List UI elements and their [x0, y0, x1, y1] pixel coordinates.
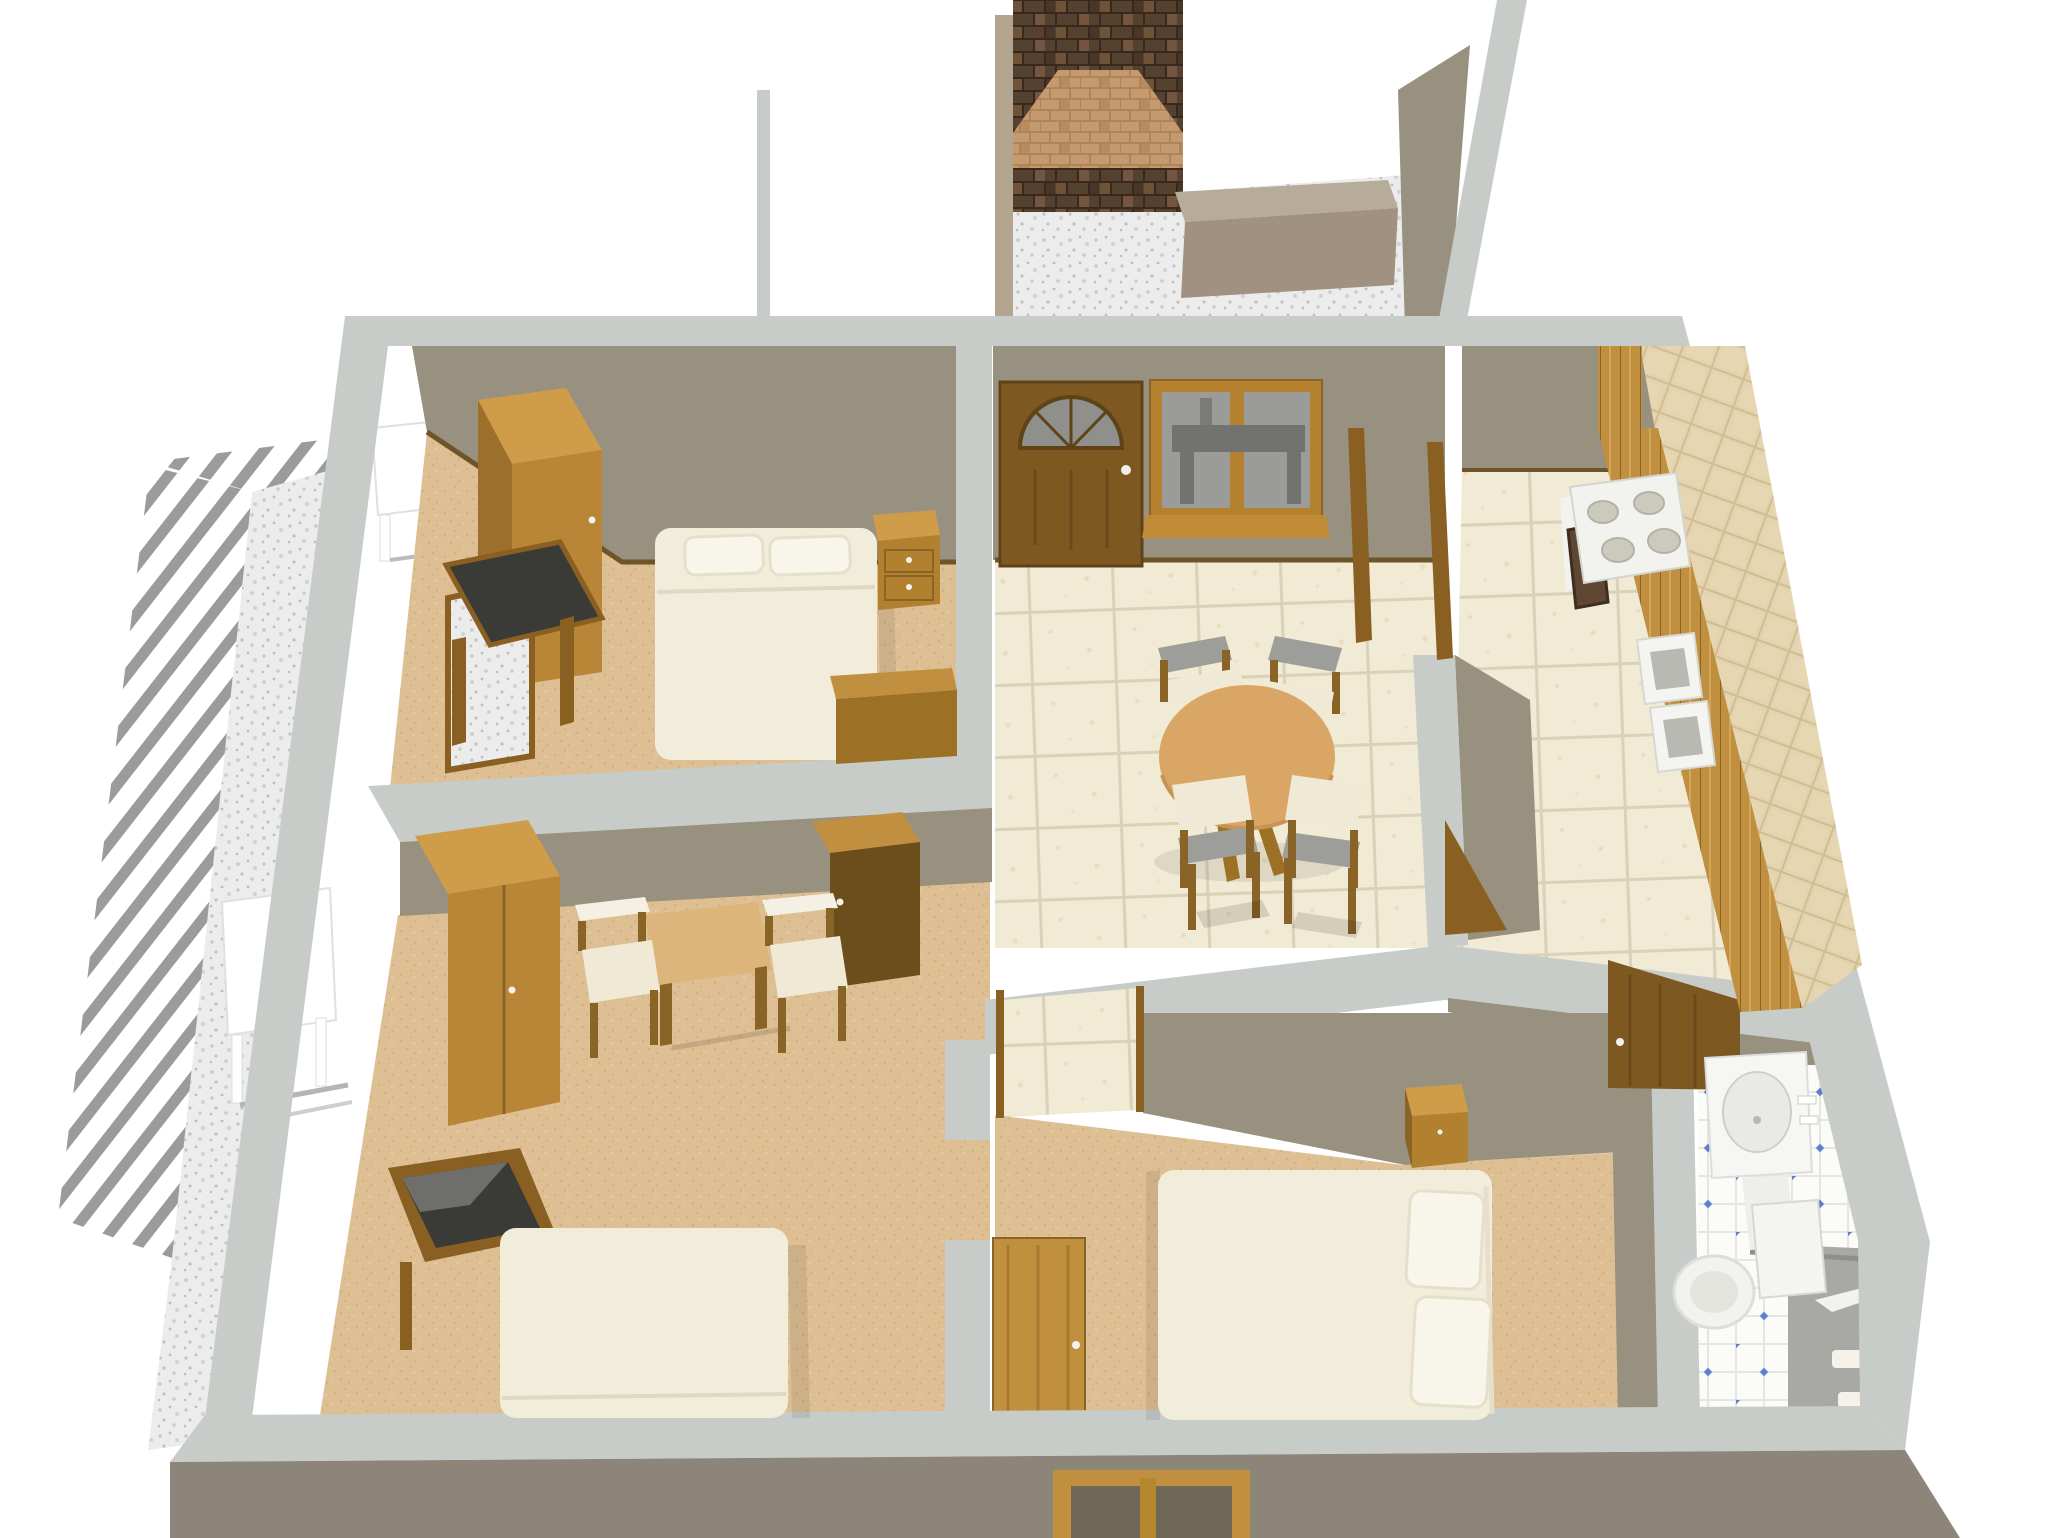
- cabinet-block: [1598, 346, 1642, 432]
- soap-item: [1832, 1350, 1862, 1368]
- brick-chimney: [1013, 0, 1183, 212]
- bedroom3-open-door: [993, 1238, 1085, 1420]
- toilet-tank: [1752, 1200, 1826, 1298]
- nightstand: [1405, 1084, 1468, 1168]
- door-handle: [1072, 1341, 1080, 1349]
- burner: [1588, 501, 1618, 523]
- bedroom3-west-doorway: [945, 1140, 990, 1240]
- patio-west-wall: [995, 15, 1013, 330]
- faucet: [1800, 1116, 1818, 1124]
- pillow: [1410, 1296, 1492, 1408]
- sink-basin: [1723, 1072, 1791, 1152]
- burner: [1648, 529, 1680, 553]
- double-bed: [1146, 1170, 1492, 1420]
- wall-stub: [757, 90, 770, 318]
- wall-bedroom1-dining: [956, 346, 992, 810]
- floorplan-render: [0, 0, 2048, 1538]
- drawer-handle: [906, 557, 912, 563]
- door-handle: [1121, 465, 1131, 475]
- burner: [1634, 492, 1664, 514]
- drawer-handle: [906, 584, 912, 590]
- planter-bench: [1175, 180, 1398, 298]
- faucet: [1798, 1096, 1816, 1104]
- burner: [1602, 538, 1634, 562]
- sink-drain: [1753, 1116, 1761, 1124]
- drawer-handle: [1438, 1130, 1443, 1135]
- dining-window: [1142, 380, 1330, 538]
- pillow: [1406, 1190, 1485, 1290]
- front-door: [1000, 382, 1142, 566]
- wardrobe-handle: [509, 987, 516, 994]
- double-bed: [500, 1228, 810, 1418]
- low-chest: [830, 668, 957, 764]
- wardrobe-handle: [589, 517, 596, 524]
- floorplan-canvas: [0, 0, 2048, 1538]
- bedroom3-doorway: [996, 986, 1144, 1118]
- pillow: [684, 535, 763, 576]
- door-handle: [1616, 1038, 1624, 1046]
- nightstand: [873, 510, 940, 610]
- north-wall-top: [345, 316, 1682, 346]
- wardrobe-handle: [837, 899, 844, 906]
- bed-shadow: [1146, 1170, 1160, 1420]
- window-sill: [1142, 515, 1330, 538]
- pillow: [769, 536, 850, 576]
- south-wall-window-frame: [1053, 1470, 1250, 1538]
